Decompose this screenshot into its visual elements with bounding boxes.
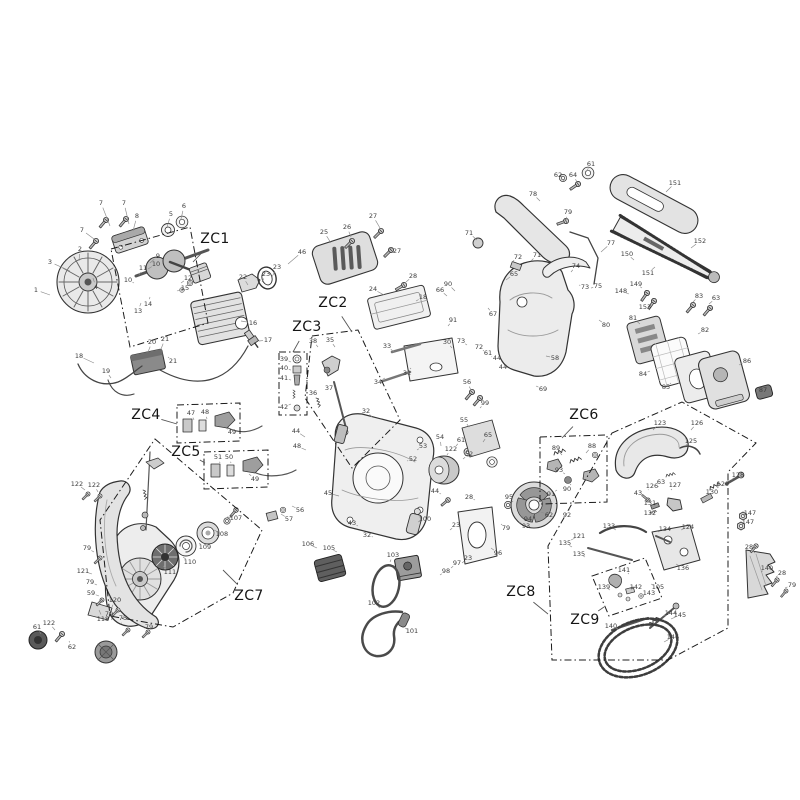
- oiler-valve-parts: [293, 355, 301, 411]
- spring-icon: [316, 397, 321, 407]
- part-number-label: 21: [169, 357, 177, 365]
- part-number-label: 28: [778, 569, 786, 577]
- intake-grille: [314, 554, 347, 582]
- clutch-assembly: [511, 482, 557, 528]
- part-number-label: 79: [145, 623, 153, 631]
- part-number-label: 61: [587, 160, 595, 168]
- part-number-label: 121: [573, 532, 585, 540]
- part-number-label: 135: [559, 539, 571, 547]
- part-number-label: 152: [694, 237, 706, 245]
- part-number-label: 44: [499, 363, 507, 371]
- part-number-label: 99: [481, 399, 489, 407]
- part-number-label: 132: [644, 509, 656, 517]
- part-number-label: 31: [403, 369, 411, 377]
- zone-label-ZC1: ZC1: [200, 231, 229, 247]
- screw-icon: [81, 491, 91, 501]
- part-number-label: 95: [505, 493, 513, 501]
- part-number-label: 67: [489, 310, 497, 318]
- screw-icon: [780, 588, 789, 598]
- bearing-icon: [487, 457, 497, 467]
- zone-label-ZC8: ZC8: [506, 584, 535, 600]
- screw-icon: [685, 301, 697, 314]
- part-number-label: 74: [572, 262, 580, 270]
- part-number-label: 69: [539, 385, 547, 393]
- part-number-label: 23: [452, 521, 460, 529]
- part-number-label: 32: [363, 531, 371, 539]
- part-number-label: 26: [343, 223, 351, 231]
- part-number-label: 48: [201, 408, 209, 416]
- muffler: [310, 230, 379, 287]
- part-number-label: 36: [309, 389, 317, 397]
- zone-label-ZC7: ZC7: [234, 588, 263, 604]
- pawl-block: [266, 511, 278, 521]
- part-number-label: 2: [78, 245, 82, 253]
- screw-icon: [118, 215, 130, 228]
- rod-bead: [141, 526, 146, 531]
- part-number-label: 93: [555, 466, 563, 474]
- spark-plug: [243, 329, 261, 350]
- part-number-label: 89: [552, 444, 560, 452]
- housing-boss: [517, 297, 527, 307]
- part-number-label: 7: [122, 199, 126, 207]
- part-number-label: 49: [228, 428, 236, 436]
- part-number-label: 51: [214, 453, 222, 461]
- part-number-label: 129: [717, 480, 729, 488]
- zone-label-ZC3: ZC3: [292, 319, 321, 335]
- part-number-label: 28: [465, 493, 473, 501]
- part-number-label: 122: [88, 481, 100, 489]
- zone-label-ZC9: ZC9: [570, 612, 599, 628]
- part-number-label: 10: [152, 260, 160, 268]
- part-number-label: 25: [320, 228, 328, 236]
- brake-lever: [588, 548, 632, 560]
- part-number-label: 7: [99, 199, 103, 207]
- screw-icon: [54, 630, 66, 643]
- part-number-label: 149: [630, 280, 642, 288]
- zone-outline-ZC1: [111, 227, 208, 347]
- part-number-label: 33: [383, 342, 391, 350]
- part-number-label: 72: [514, 253, 522, 261]
- part-number-label: 143: [643, 589, 655, 597]
- part-number-label: 79: [502, 524, 510, 532]
- part-number-label: 122: [445, 445, 457, 453]
- part-number-label: 101: [406, 627, 418, 635]
- part-number-label: 71: [533, 251, 541, 259]
- part-number-label: 75: [594, 282, 602, 290]
- part-number-label: 53: [419, 442, 427, 450]
- part-number-label: 82: [701, 326, 709, 334]
- part-number-label: 148: [615, 287, 627, 295]
- part-number-label: 62: [554, 171, 562, 179]
- part-number-label: 42: [280, 403, 288, 411]
- part-number-label: 110: [184, 558, 196, 566]
- part-number-label: 102: [368, 599, 380, 607]
- recoil-spring: [176, 536, 196, 556]
- part-number-label: 86: [743, 357, 751, 365]
- ground-wire: [108, 380, 134, 395]
- part-number-label: 125: [685, 437, 697, 445]
- part-number-label: 122: [43, 619, 55, 627]
- part-number-label: 65: [484, 431, 492, 439]
- part-number-label: 63: [657, 478, 665, 486]
- part-number-label: 40: [280, 364, 288, 372]
- part-number-label: 107: [230, 514, 242, 522]
- part-number-label: 8: [135, 212, 139, 220]
- part-number-label: 134: [659, 525, 671, 533]
- part-number-label: 11: [139, 264, 147, 272]
- part-number-label: 46: [298, 248, 306, 256]
- screw-icon: [639, 289, 650, 302]
- part-number-label: 80: [602, 321, 610, 329]
- screw-icon: [98, 216, 110, 229]
- part-number-label: 22: [239, 273, 247, 281]
- part-number-label: 28: [745, 543, 753, 551]
- exploded-parts-diagram: ZC1ZC2ZC3ZC4ZC5ZC6ZC7ZC8ZC9 778756231491…: [0, 0, 800, 800]
- part-number-label: 47: [187, 409, 195, 417]
- part-number-label: 24: [369, 285, 377, 293]
- rod-bead: [142, 512, 148, 518]
- part-number-label: 9: [156, 252, 160, 260]
- part-number-label: 108: [216, 530, 228, 538]
- part-number-label: 98: [442, 567, 450, 575]
- part-number-label: 55: [460, 416, 468, 424]
- part-number-label: 73: [457, 337, 465, 345]
- part-number-label: 72: [475, 343, 483, 351]
- part-number-label: 44: [431, 487, 439, 495]
- part-number-label: 52: [465, 450, 473, 458]
- part-number-label: 133: [603, 522, 615, 530]
- part-number-label: 43: [348, 519, 356, 527]
- part-number-label: 93: [522, 522, 530, 530]
- grommet-center: [34, 636, 42, 644]
- part-number-label: 58: [551, 354, 559, 362]
- part-number-label: 14: [144, 300, 152, 308]
- part-number-label: 88: [588, 442, 596, 450]
- part-number-label: 35: [326, 336, 334, 344]
- part-number-label: 59: [87, 589, 95, 597]
- part-number-label: 56: [463, 378, 471, 386]
- switch-parts-zc5: [211, 457, 296, 477]
- part-number-label: 145: [674, 611, 686, 619]
- part-number-label: 91: [547, 490, 555, 498]
- part-number-label: 141: [618, 566, 630, 574]
- part-number-label: 123: [654, 419, 666, 427]
- part-number-label: 103: [387, 551, 399, 559]
- part-number-label: 27: [369, 212, 377, 220]
- part-number-label: 62: [68, 643, 76, 651]
- part-number-label: 13: [134, 307, 142, 315]
- part-number-label: 44: [493, 354, 501, 362]
- part-number-label: 92: [563, 511, 571, 519]
- washer-icon: [280, 507, 286, 513]
- part-number-label: 45: [324, 489, 332, 497]
- part-number-label: 18: [419, 293, 427, 301]
- part-number-label: 96: [494, 549, 502, 557]
- part-number-label: 79: [105, 610, 113, 618]
- part-number-label: 52: [409, 455, 417, 463]
- part-number-label: 37: [325, 384, 333, 392]
- part-number-label: 41: [280, 374, 288, 382]
- part-number-label: 121: [77, 567, 89, 575]
- part-number-label: 6: [182, 202, 186, 210]
- part-number-label: 16: [249, 319, 257, 327]
- part-number-label: 64: [569, 171, 577, 179]
- fuel-filter: [397, 612, 410, 628]
- part-number-label: 85: [662, 383, 670, 391]
- part-number-label: 56: [296, 506, 304, 514]
- part-number-label: 21: [161, 335, 169, 343]
- part-number-label: 127: [669, 481, 681, 489]
- part-number-label: 10: [124, 276, 132, 284]
- part-number-label: 12: [184, 274, 192, 282]
- part-number-label: 50: [225, 453, 233, 461]
- part-number-label: 57: [285, 515, 293, 523]
- part-number-label: 65: [510, 270, 518, 278]
- part-number-label: 140: [605, 622, 617, 630]
- part-number-label: 61: [33, 623, 41, 631]
- part-number-label: 1: [34, 286, 38, 294]
- flywheel: [57, 251, 119, 313]
- part-number-label: 79: [83, 544, 91, 552]
- rope-rotor: [152, 544, 178, 570]
- part-number-label: 49: [251, 475, 259, 483]
- side-plate-hole: [468, 522, 486, 548]
- spring-icon: [665, 472, 675, 477]
- part-number-label: 147: [742, 518, 754, 526]
- part-number-label: 61: [484, 349, 492, 357]
- fuel-hose: [362, 612, 406, 657]
- part-number-label: 111: [164, 568, 176, 576]
- crankcase-bore: [353, 453, 403, 503]
- part-number-label: 7: [80, 226, 84, 234]
- screw-icon: [569, 180, 582, 191]
- part-number-label: 150: [621, 250, 633, 258]
- part-number-label: 5: [169, 210, 173, 218]
- part-number-label: 122: [71, 480, 83, 488]
- part-number-label: 3: [48, 258, 52, 266]
- part-number-label: 135: [573, 550, 585, 558]
- part-number-label: 38: [309, 337, 317, 345]
- zone-label-ZC5: ZC5: [171, 444, 200, 460]
- part-number-label: 34: [374, 378, 382, 386]
- part-number-label: 48: [293, 442, 301, 450]
- part-number-label: 91: [449, 316, 457, 324]
- part-number-label: 44: [292, 427, 300, 435]
- part-number-label: 4: [94, 283, 98, 291]
- part-number-label: 43: [634, 489, 642, 497]
- part-number-label: 139: [598, 583, 610, 591]
- screw-icon: [556, 218, 569, 227]
- part-number-label: 106: [302, 540, 314, 548]
- part-number-label: 109: [199, 543, 211, 551]
- vibration-damper: [95, 641, 117, 663]
- throttle-trigger: [667, 498, 682, 511]
- part-number-label: 79: [564, 208, 572, 216]
- part-number-label: 83: [695, 292, 703, 300]
- lever-pivot: [324, 367, 330, 373]
- part-number-label: 90: [444, 280, 452, 288]
- part-number-label: 15: [181, 284, 189, 292]
- part-number-label: 20: [148, 338, 156, 346]
- part-number-label: 84: [639, 370, 647, 378]
- part-number-label: 124: [682, 523, 694, 531]
- part-number-label: 151: [669, 179, 681, 187]
- part-number-label: 54: [436, 433, 444, 441]
- part-number-label: 147: [744, 509, 756, 517]
- part-number-label: 17: [264, 336, 272, 344]
- part-number-label: 77: [607, 239, 615, 247]
- part-number-label: 90: [563, 485, 571, 493]
- zone-label-ZC2: ZC2: [318, 295, 347, 311]
- part-number-label: 71: [465, 229, 473, 237]
- part-number-label: 78: [529, 190, 537, 198]
- part-number-label: 61: [457, 436, 465, 444]
- screw-icon: [464, 388, 476, 401]
- part-number-label: 130: [706, 488, 718, 496]
- part-number-label: 153: [639, 303, 651, 311]
- part-number-label: 79: [788, 581, 796, 589]
- cylinder: [190, 291, 250, 345]
- bracket-hole: [680, 548, 688, 556]
- tank-housing: [498, 261, 574, 376]
- plate-hole: [430, 363, 442, 371]
- part-number-label: 30: [443, 338, 451, 346]
- oil-pump-lever: [322, 356, 340, 376]
- grommet: [473, 238, 483, 248]
- part-number-label: 136: [677, 564, 689, 572]
- part-number-label: 142: [630, 583, 642, 591]
- part-number-label: 32: [362, 407, 370, 415]
- screw-icon: [372, 227, 384, 239]
- bearing-icon: [176, 216, 188, 228]
- part-number-label: 97: [453, 559, 461, 567]
- part-number-label: 23: [464, 554, 472, 562]
- screw-icon: [121, 627, 131, 637]
- part-number-label: 75: [119, 614, 127, 622]
- part-number-label: 81: [629, 314, 637, 322]
- saw-chain: [590, 608, 686, 689]
- clutch-drum: [429, 456, 459, 484]
- screw-icon: [440, 497, 451, 508]
- part-number-label: 62: [545, 511, 553, 519]
- part-number-label: 27: [393, 247, 401, 255]
- part-number-label: 87: [759, 386, 767, 394]
- part-number-label: 100: [419, 515, 431, 523]
- part-number-label: 140: [761, 564, 773, 572]
- part-number-label: 39: [280, 355, 288, 363]
- part-number-label: 79: [86, 578, 94, 586]
- zone-label-ZC4: ZC4: [131, 407, 160, 423]
- part-number-label: 128: [732, 471, 744, 479]
- screw-icon: [702, 304, 714, 317]
- part-number-label: 105: [323, 544, 335, 552]
- part-number-label: 120: [109, 596, 121, 604]
- part-number-label: 28: [409, 272, 417, 280]
- part-number-label: 63: [712, 294, 720, 302]
- part-number-label: 146: [667, 633, 679, 641]
- part-number-label: 126: [691, 419, 703, 427]
- part-number-label: 18: [75, 352, 83, 360]
- part-number-label: 23: [262, 270, 270, 278]
- part-number-label: 151: [642, 269, 654, 277]
- diagram-page: ZC1ZC2ZC3ZC4ZC5ZC6ZC7ZC8ZC9 778756231491…: [0, 0, 800, 800]
- zone-label-ZC6: ZC6: [569, 407, 598, 423]
- part-number-label: 23: [273, 263, 281, 271]
- part-number-label: 131: [644, 499, 656, 507]
- part-number-label: 73: [581, 283, 589, 291]
- spring-icon: [143, 490, 147, 500]
- part-number-label: 19: [102, 367, 110, 375]
